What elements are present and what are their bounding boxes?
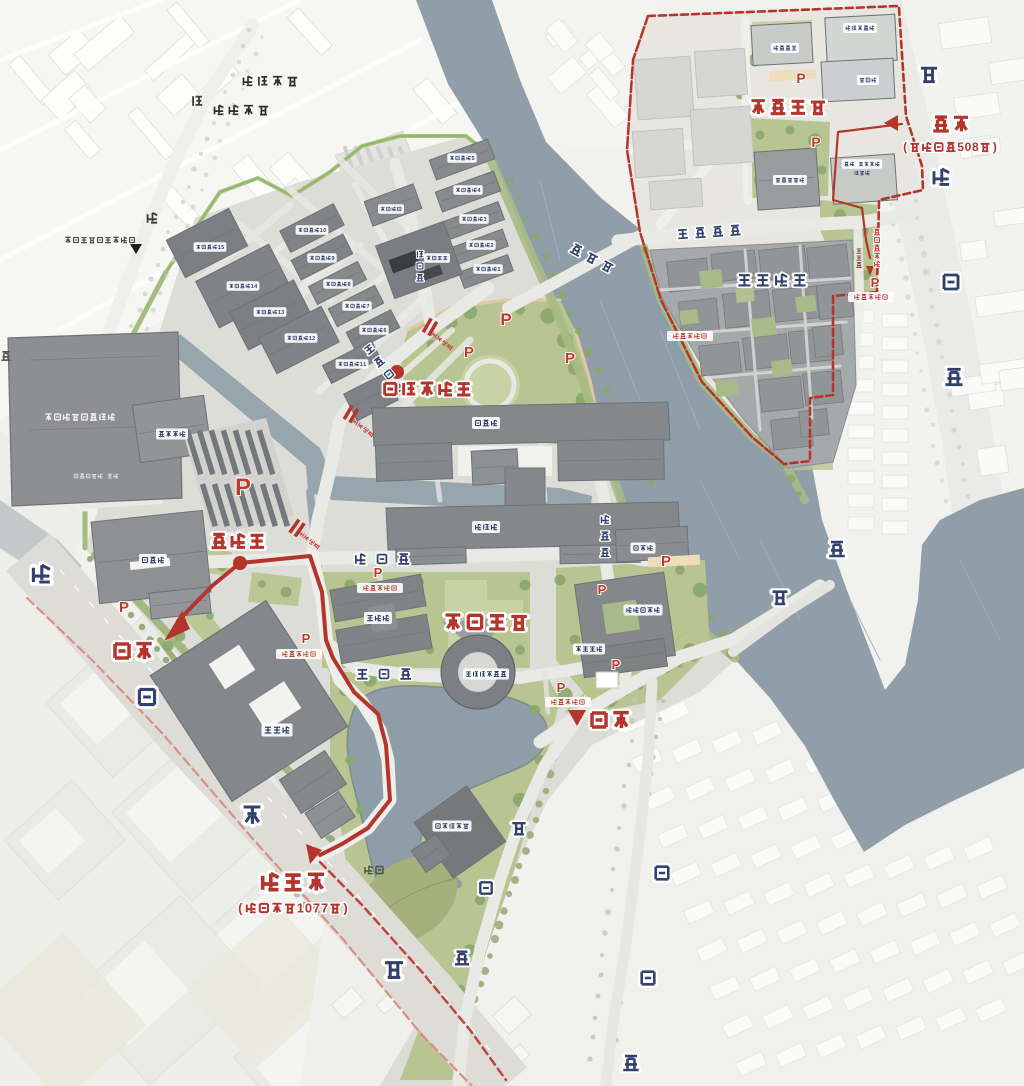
- svg-text:8: 8: [972, 140, 979, 154]
- svg-text:0: 0: [323, 228, 326, 234]
- svg-text:1: 1: [497, 267, 500, 273]
- svg-text:8: 8: [347, 282, 350, 288]
- svg-text:3: 3: [483, 217, 486, 223]
- svg-text:): ): [343, 900, 347, 915]
- svg-text:6: 6: [383, 328, 386, 334]
- svg-text:P: P: [464, 344, 474, 361]
- svg-text:0: 0: [965, 140, 972, 154]
- svg-text:P: P: [500, 310, 511, 329]
- svg-text:7: 7: [321, 900, 328, 915]
- svg-text:P: P: [811, 134, 820, 150]
- svg-text:P: P: [557, 680, 566, 695]
- svg-text:5: 5: [471, 156, 474, 162]
- svg-text:0: 0: [305, 900, 312, 915]
- svg-text:P: P: [565, 350, 575, 367]
- svg-text:P: P: [374, 565, 383, 580]
- svg-text:1: 1: [363, 362, 366, 368]
- svg-text:(: (: [903, 140, 907, 154]
- svg-text:3: 3: [281, 310, 284, 316]
- svg-text:(: (: [238, 900, 243, 915]
- svg-text:9: 9: [331, 256, 334, 262]
- svg-text:P: P: [796, 70, 805, 86]
- svg-text:5: 5: [957, 140, 964, 154]
- svg-text:): ): [993, 140, 997, 154]
- svg-text:P: P: [235, 474, 251, 501]
- svg-text:5: 5: [221, 245, 224, 251]
- svg-text:P: P: [871, 275, 880, 290]
- svg-text:7: 7: [366, 304, 369, 310]
- svg-text:1: 1: [297, 900, 304, 915]
- svg-text:P: P: [661, 553, 671, 570]
- svg-text:2: 2: [312, 336, 315, 342]
- svg-text:2: 2: [490, 243, 493, 249]
- svg-text:P: P: [302, 631, 311, 646]
- svg-text:P: P: [598, 582, 607, 597]
- svg-text:P: P: [612, 657, 621, 672]
- svg-text:7: 7: [313, 900, 320, 915]
- svg-text:P: P: [119, 599, 129, 616]
